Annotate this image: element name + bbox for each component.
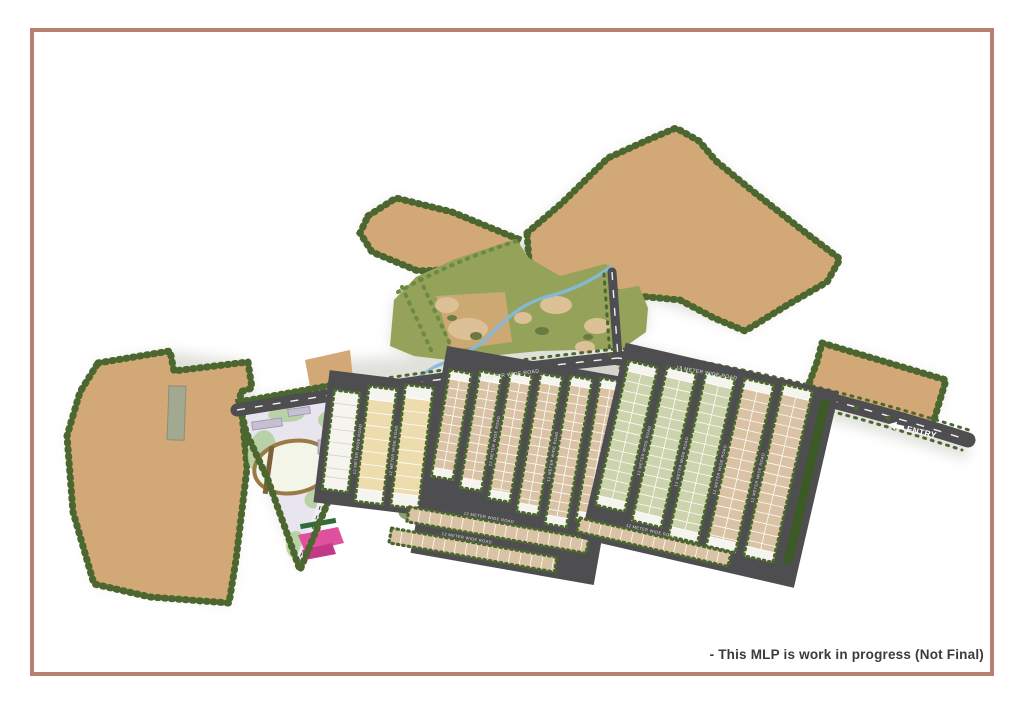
master-layout-plan: 12 METER WIDE ROAD12 METER WIDE ROAD12 M…	[0, 0, 1024, 704]
page-canvas: 12 METER WIDE ROAD12 METER WIDE ROAD12 M…	[0, 0, 1024, 704]
utility-structure	[167, 386, 186, 441]
left-land-parcel	[67, 351, 252, 603]
plot-clusters: 12 METER WIDE ROAD12 METER WIDE ROAD12 M…	[313, 342, 839, 588]
disclaimer-text: - This MLP is work in progress (Not Fina…	[710, 647, 984, 662]
